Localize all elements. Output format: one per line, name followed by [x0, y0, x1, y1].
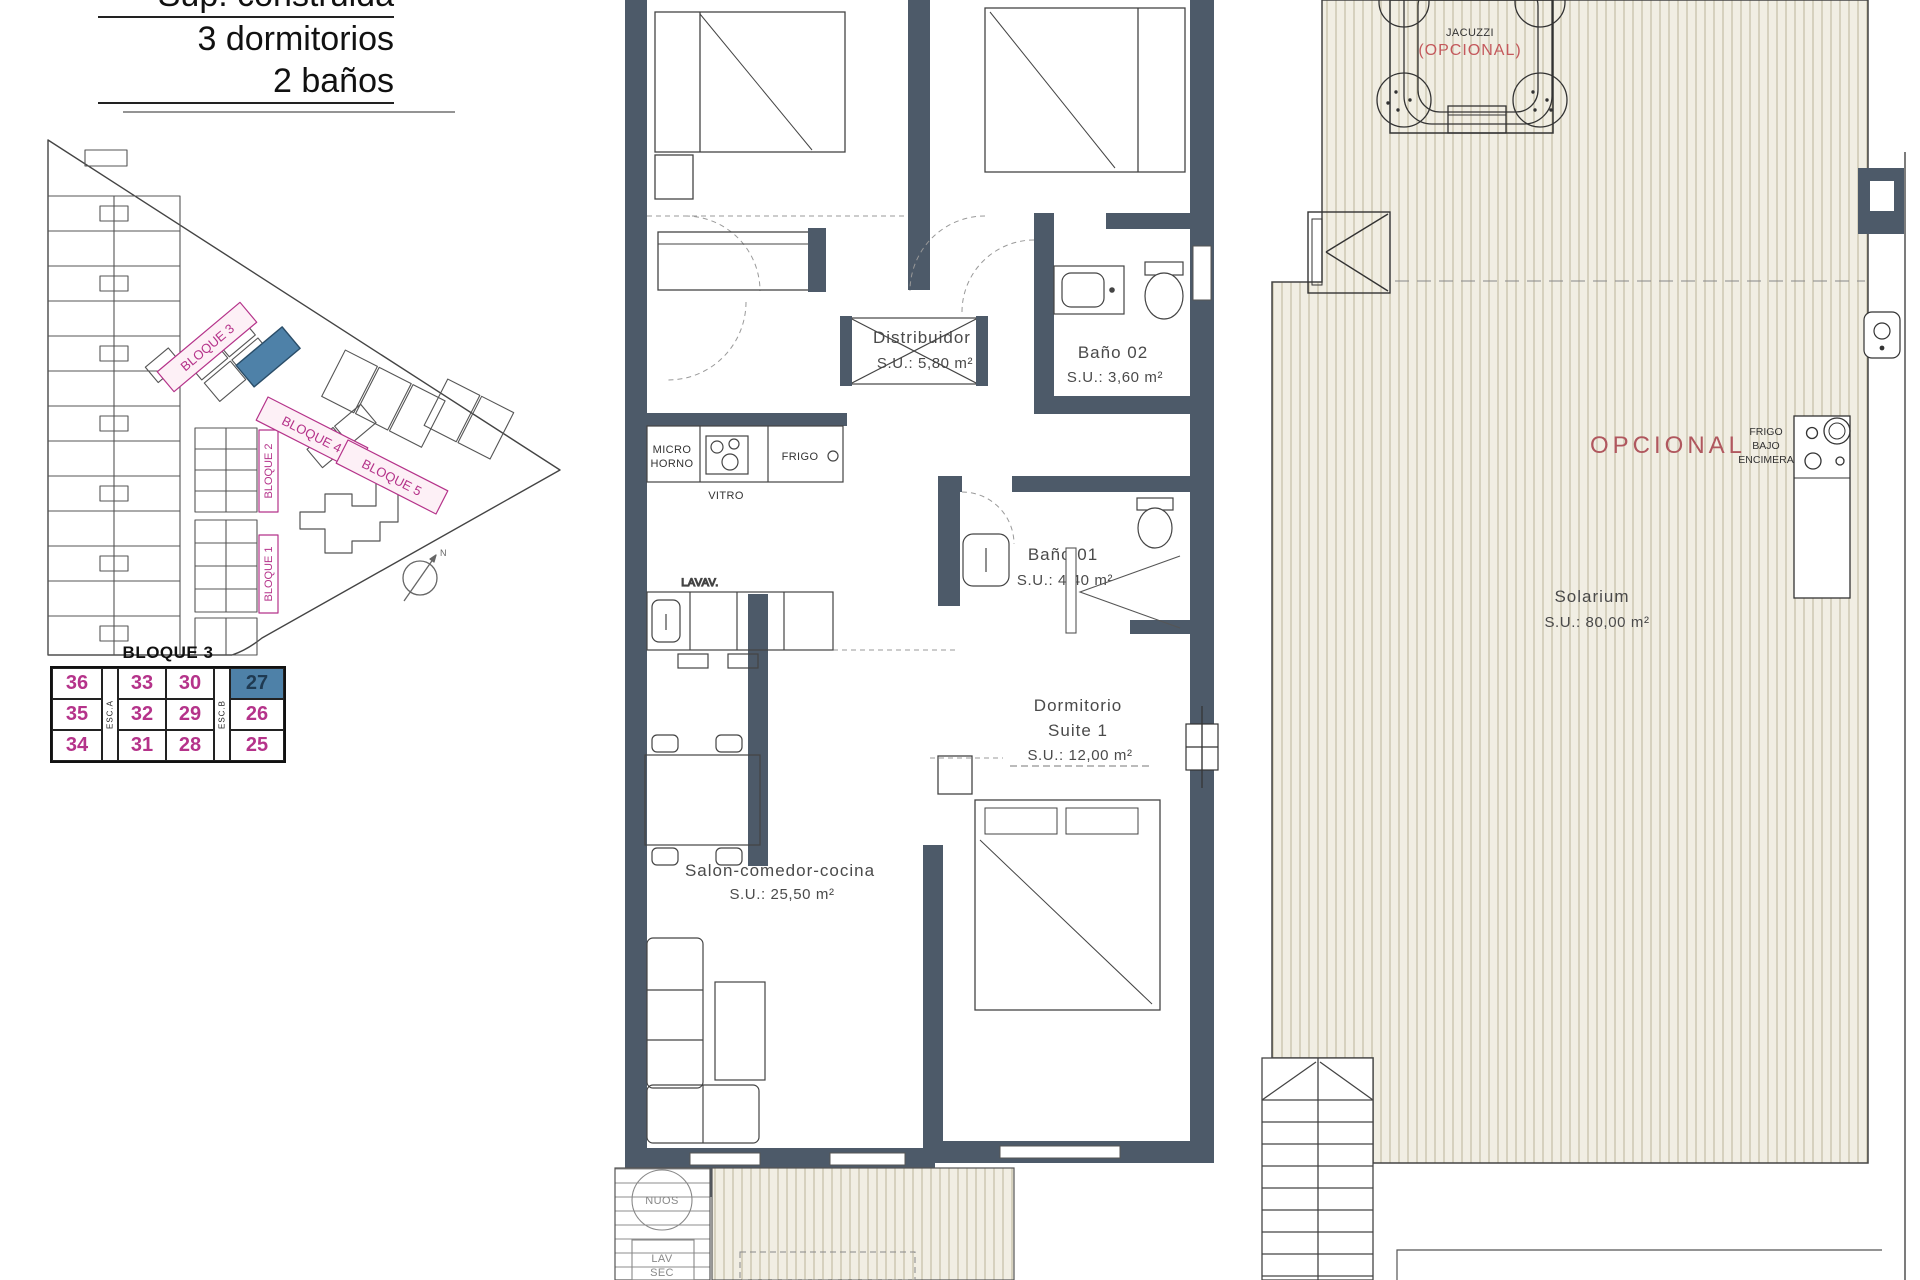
spec-header: Sup. construida 3 dormitorios 2 baños	[98, 0, 394, 104]
unit-29: 29	[166, 699, 214, 730]
wardrobe	[658, 232, 818, 290]
floorplan-canvas: BLOQUE 2 BLOQUE 1 BLOQUE 3	[0, 0, 1920, 1280]
apartment: Distribuidor S.U.: 5,80 m² Baño 02 S.U.:…	[615, 0, 1218, 1280]
svg-text:S.U.: 4,40 m²: S.U.: 4,40 m²	[1017, 572, 1113, 589]
sofa	[647, 938, 759, 1143]
suite: Dormitorio Suite 1 S.U.: 12,00 m²	[938, 696, 1160, 1010]
bano02: Baño 02 S.U.: 3,60 m²	[1054, 262, 1183, 386]
svg-text:Suite 1: Suite 1	[1048, 721, 1108, 740]
svg-text:S.U.: 80,00 m²: S.U.: 80,00 m²	[1544, 614, 1649, 631]
spec-bedrooms: 3 dormitorios	[98, 18, 394, 60]
walls	[625, 0, 1214, 1197]
jacuzzi-opcional-label: (OPCIONAL)	[1418, 42, 1521, 59]
toilet	[1138, 508, 1172, 548]
unit-32: 32	[118, 699, 166, 730]
kitchen: MICRO HORNO FRIGO VITRO	[647, 426, 843, 502]
svg-text:S.U.: 12,00 m²: S.U.: 12,00 m²	[1027, 747, 1132, 764]
svg-text:N: N	[440, 548, 447, 558]
solarium-deck	[1272, 0, 1868, 1163]
svg-text:Baño 02: Baño 02	[1078, 343, 1148, 362]
unit-27-highlighted: 27	[230, 668, 284, 699]
svg-text:FRIGO: FRIGO	[782, 451, 819, 463]
bloque5-label: BLOQUE 5	[336, 440, 448, 514]
svg-text:FRIGO: FRIGO	[1749, 426, 1782, 438]
suite-bed	[975, 800, 1160, 1010]
unit-table: BLOQUE 3 36 ESC.A 33 30 ESC.B 27 35 32 2…	[50, 643, 286, 763]
unit-25: 25	[230, 730, 284, 761]
bloque1-label: BLOQUE 1	[259, 535, 278, 613]
utility-room: NUOS LAV SEC	[615, 1168, 710, 1280]
svg-text:S.U.: 5,80 m²: S.U.: 5,80 m²	[877, 355, 973, 372]
unit-36: 36	[52, 668, 102, 699]
lavav-counter: LAVAV.	[647, 577, 833, 668]
svg-text:SEC: SEC	[650, 1267, 674, 1279]
svg-text:ENCIMERA: ENCIMERA	[1738, 454, 1793, 466]
svg-text:MICRO: MICRO	[653, 444, 692, 456]
stair-b-label: ESC.B	[214, 668, 230, 761]
unit-31: 31	[118, 730, 166, 761]
toilet	[1145, 273, 1183, 319]
bloque2-label: BLOQUE 2	[259, 430, 278, 512]
unit-30: 30	[166, 668, 214, 699]
bottom-terrace	[712, 1168, 1014, 1280]
svg-text:NUOS: NUOS	[645, 1195, 678, 1207]
spec-built-area: Sup. construida	[98, 0, 394, 18]
distribuidor: Distribuidor S.U.: 5,80 m²	[840, 316, 988, 386]
jacuzzi-label: JACUZZI	[1446, 27, 1494, 39]
wall-structure	[1858, 168, 1904, 234]
dining-set	[645, 735, 760, 865]
site-units-mid-block	[195, 428, 257, 655]
svg-text:Solarium: Solarium	[1554, 587, 1629, 606]
svg-text:BAJO: BAJO	[1752, 440, 1779, 452]
svg-text:BLOQUE 2: BLOQUE 2	[263, 443, 275, 498]
highlighted-unit-27	[236, 327, 300, 387]
unit-grid: 36 ESC.A 33 30 ESC.B 27 35 32 29 26 34 3…	[50, 666, 286, 763]
outdoor-counter	[1794, 416, 1850, 598]
solarium: JACUZZI (OPCIONAL) OPCIONAL FRIGO BAJO E…	[1262, 0, 1905, 1280]
svg-text:Baño 01: Baño 01	[1028, 545, 1098, 564]
opcional-label: OPCIONAL	[1590, 432, 1746, 459]
stair-a-label: ESC.A	[102, 668, 118, 761]
site-units-left-block	[48, 150, 180, 655]
svg-text:Dormitorio: Dormitorio	[1034, 696, 1122, 715]
unit-28: 28	[166, 730, 214, 761]
unit-26: 26	[230, 699, 284, 730]
svg-text:VITRO: VITRO	[708, 490, 744, 502]
nightstand	[655, 155, 693, 199]
svg-text:LAVAV.: LAVAV.	[681, 577, 718, 589]
site-plan: BLOQUE 2 BLOQUE 1 BLOQUE 3	[48, 112, 560, 655]
north-compass-icon: N	[403, 548, 447, 601]
unit-table-title: BLOQUE 3	[50, 643, 286, 663]
unit-33: 33	[118, 668, 166, 699]
hall-wardrobe	[840, 316, 988, 386]
salon: Salon-comedor-cocina S.U.: 25,50 m²	[645, 735, 875, 1143]
spec-bathrooms: 2 baños	[98, 60, 394, 104]
unit-35: 35	[52, 699, 102, 730]
coffee-table	[715, 982, 765, 1080]
bedroom2	[985, 8, 1185, 172]
svg-text:S.U.: 3,60 m²: S.U.: 3,60 m²	[1067, 369, 1163, 386]
svg-text:LAV: LAV	[651, 1253, 672, 1265]
communal-building	[300, 480, 398, 553]
lower-balcony-edge	[1397, 1250, 1882, 1280]
nightstand	[938, 756, 972, 794]
svg-text:HORNO: HORNO	[651, 458, 694, 470]
frigo-mark	[828, 451, 838, 461]
bedroom1	[655, 12, 845, 292]
svg-text:BLOQUE 1: BLOQUE 1	[263, 546, 275, 601]
svg-text:S.U.: 25,50 m²: S.U.: 25,50 m²	[729, 886, 834, 903]
outdoor-sink	[1864, 312, 1900, 358]
unit-34: 34	[52, 730, 102, 761]
svg-text:Salon-comedor-cocina: Salon-comedor-cocina	[685, 861, 875, 880]
bano01: Baño 01 S.U.: 4,40 m²	[963, 498, 1180, 633]
stairs	[1262, 1058, 1373, 1280]
